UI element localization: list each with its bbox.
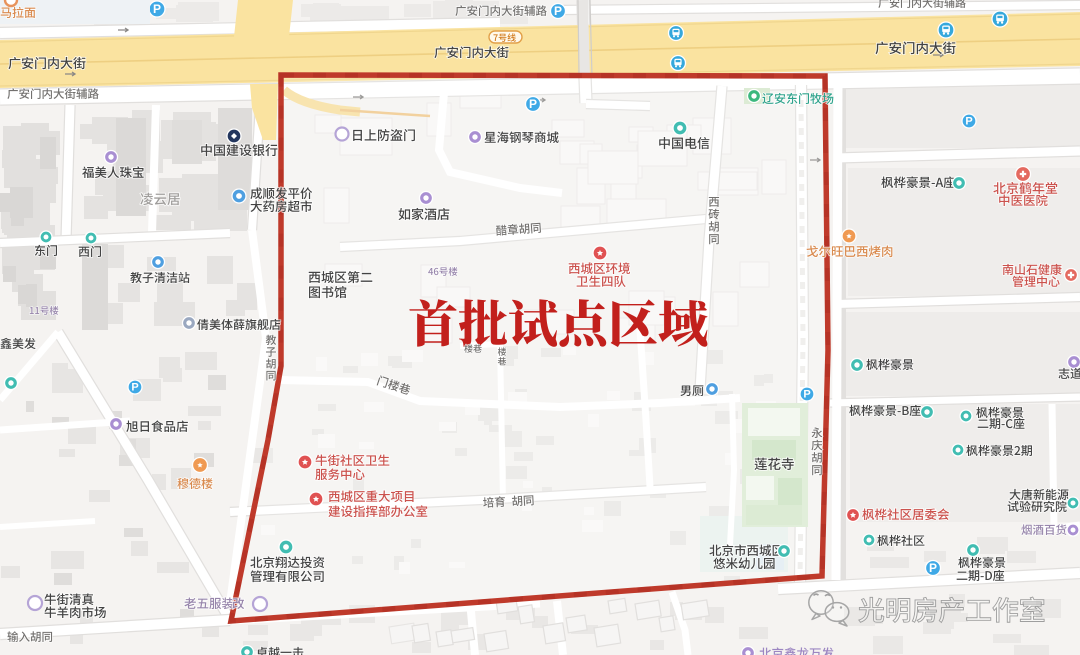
svg-text:P: P (803, 389, 810, 401)
svg-text:P: P (554, 4, 562, 18)
svg-text:P: P (153, 2, 161, 16)
svg-text:P: P (529, 97, 537, 111)
svg-text:P: P (131, 382, 138, 394)
svg-text:P: P (965, 116, 972, 128)
svg-text:P: P (929, 561, 937, 575)
